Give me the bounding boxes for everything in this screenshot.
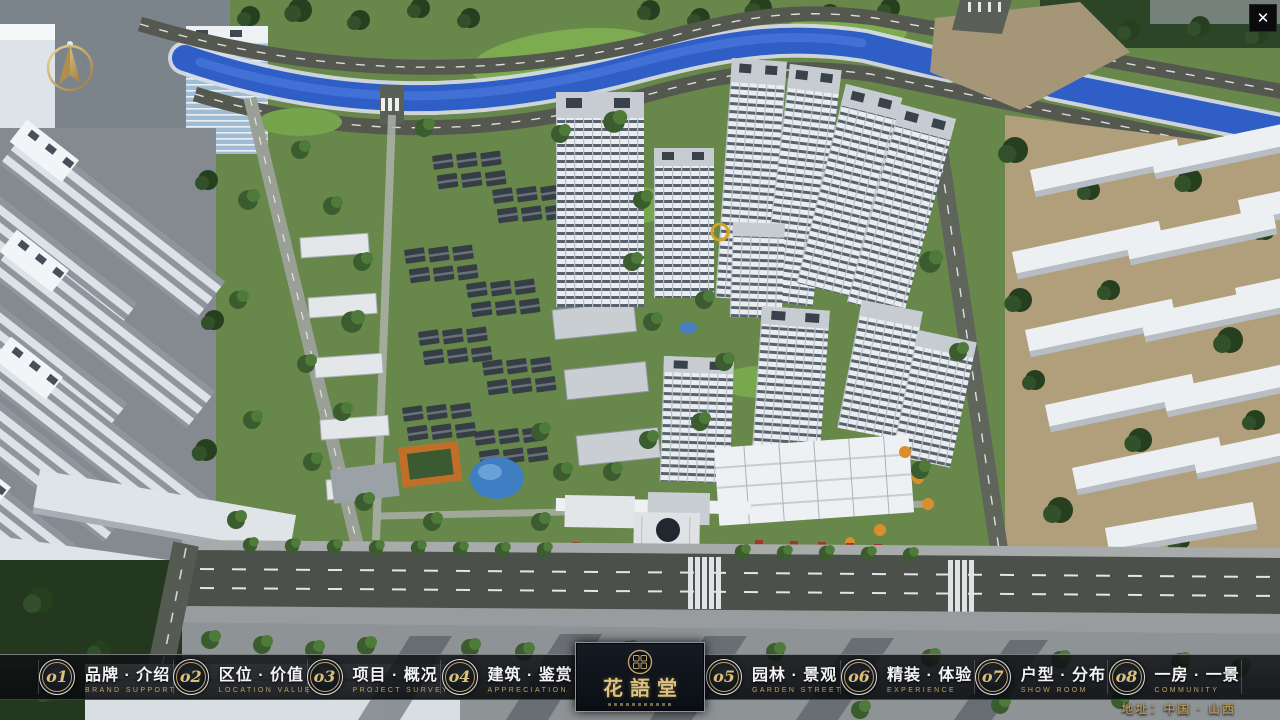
nav-number: o2 (180, 669, 202, 685)
nav-item-location-value[interactable]: o2 区位 · 价值LOCATION VALUE (173, 655, 307, 699)
nav-number: o8 (1116, 669, 1138, 685)
nav-number-badge: o5 (706, 659, 742, 695)
close-button[interactable]: ✕ (1249, 4, 1277, 32)
project-logo-panel[interactable]: 花語堂 (575, 642, 705, 712)
nav-number-badge: o3 (307, 659, 343, 695)
logo-subtitle-line (608, 703, 672, 706)
nav-label-zh: 建筑 · 鉴赏 (488, 661, 573, 685)
project-address: 地址：中国 · 山西 (1121, 700, 1236, 717)
masterplan-3d-viewport[interactable] (0, 0, 1280, 720)
nav-number-badge: o6 (841, 659, 877, 695)
nav-label-zh: 品牌 · 介绍 (85, 661, 170, 685)
nav-label-zh: 项目 · 概况 (353, 661, 438, 685)
nav-item-interior-experience[interactable]: o6 精装 · 体验EXPERIENCE (840, 655, 974, 699)
nav-item-floorplan-distribution[interactable]: o7 户型 · 分布SHOW ROOM (974, 655, 1108, 699)
presentation-window: ✕ o1 品牌 · 介绍BRAND SUPPORT o2 区位 · 价值LOCA… (0, 0, 1280, 720)
close-icon: ✕ (1257, 11, 1270, 26)
nav-item-architecture-appreciation[interactable]: o4 建筑 · 鉴赏APPRECIATION (440, 655, 574, 699)
nav-number-badge: o4 (442, 659, 478, 695)
nav-label-zh: 户型 · 分布 (1021, 661, 1106, 685)
nav-label-zh: 区位 · 价值 (219, 661, 304, 685)
compass-icon (42, 36, 98, 96)
nav-label-en: GARDEN STREET (752, 687, 843, 694)
nav-item-garden-landscape[interactable]: o5 园林 · 景观GARDEN STREET (706, 655, 840, 699)
nav-item-brand-intro[interactable]: o1 品牌 · 介绍BRAND SUPPORT (39, 655, 173, 699)
nav-label-en: LOCATION VALUE (219, 687, 312, 694)
nav-label-en: APPRECIATION (488, 687, 568, 694)
nav-number: o3 (314, 669, 336, 685)
nav-label-zh: 精装 · 体验 (887, 661, 972, 685)
logo-seal-icon (627, 649, 653, 675)
nav-label-en: SHOW ROOM (1021, 687, 1088, 694)
nav-label-en: PROJECT SURVEY (353, 687, 450, 694)
nav-label-en: EXPERIENCE (887, 687, 956, 694)
nav-number-badge: o8 (1109, 659, 1145, 695)
nav-item-room-scenery[interactable]: o8 一房 · 一景COMMUNITY (1107, 655, 1241, 699)
nav-label-zh: 一房 · 一景 (1155, 661, 1240, 685)
nav-number: o1 (46, 669, 68, 685)
nav-label-en: BRAND SUPPORT (85, 687, 176, 694)
nav-label-zh: 园林 · 景观 (752, 661, 837, 685)
nav-number-badge: o1 (39, 659, 75, 695)
masterplan-render (0, 0, 1280, 720)
nav-label-en: COMMUNITY (1155, 687, 1220, 694)
nav-number: o6 (848, 669, 870, 685)
nav-number: o5 (713, 669, 735, 685)
nav-number: o7 (982, 669, 1004, 685)
nav-item-project-overview[interactable]: o3 项目 · 概况PROJECT SURVEY (307, 655, 441, 699)
nav-number-badge: o7 (975, 659, 1011, 695)
project-logo-name: 花語堂 (596, 678, 684, 698)
nav-number-badge: o2 (173, 659, 209, 695)
nav-number: o4 (449, 669, 471, 685)
bottom-navbar: o1 品牌 · 介绍BRAND SUPPORT o2 区位 · 价值LOCATI… (0, 654, 1280, 700)
